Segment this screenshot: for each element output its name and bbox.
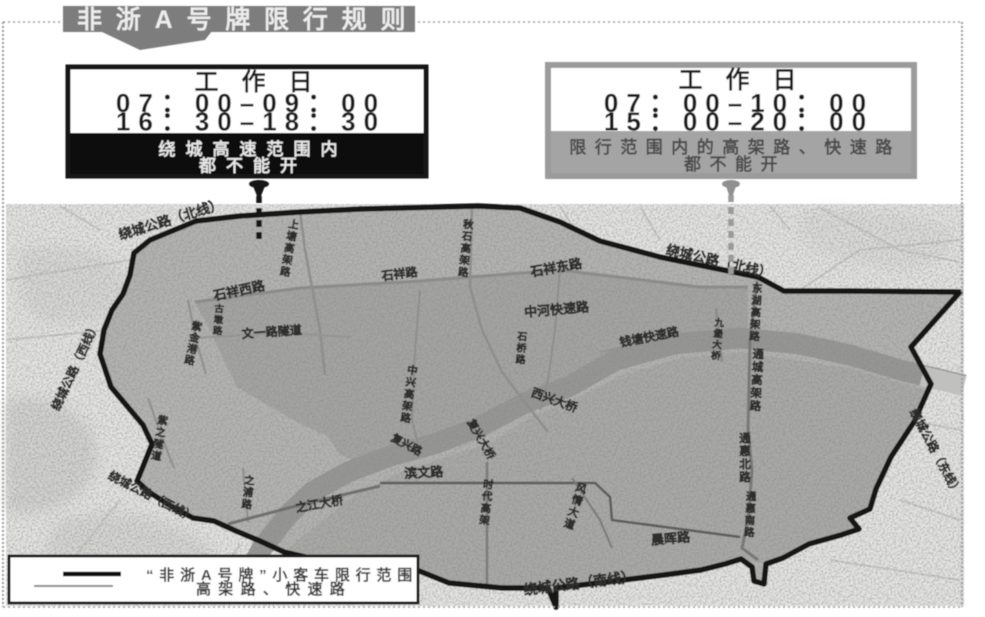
svg-text:都不能开: 都不能开 [198, 156, 307, 176]
svg-text:16：30–18：30: 16：30–18：30 [116, 107, 386, 137]
svg-text:都不能开: 都不能开 [683, 154, 786, 174]
svg-text:非浙A号牌限行规则: 非浙A号牌限行规则 [77, 5, 419, 34]
svg-text:滨文路: 滨文路 [404, 464, 445, 481]
svg-text:15：00–20：00: 15：00–20：00 [604, 107, 874, 137]
svg-text:限行范围内的高架路、快速路: 限行范围内的高架路、快速路 [569, 137, 901, 157]
svg-text:高架路、快速路: 高架路、快速路 [196, 580, 352, 598]
